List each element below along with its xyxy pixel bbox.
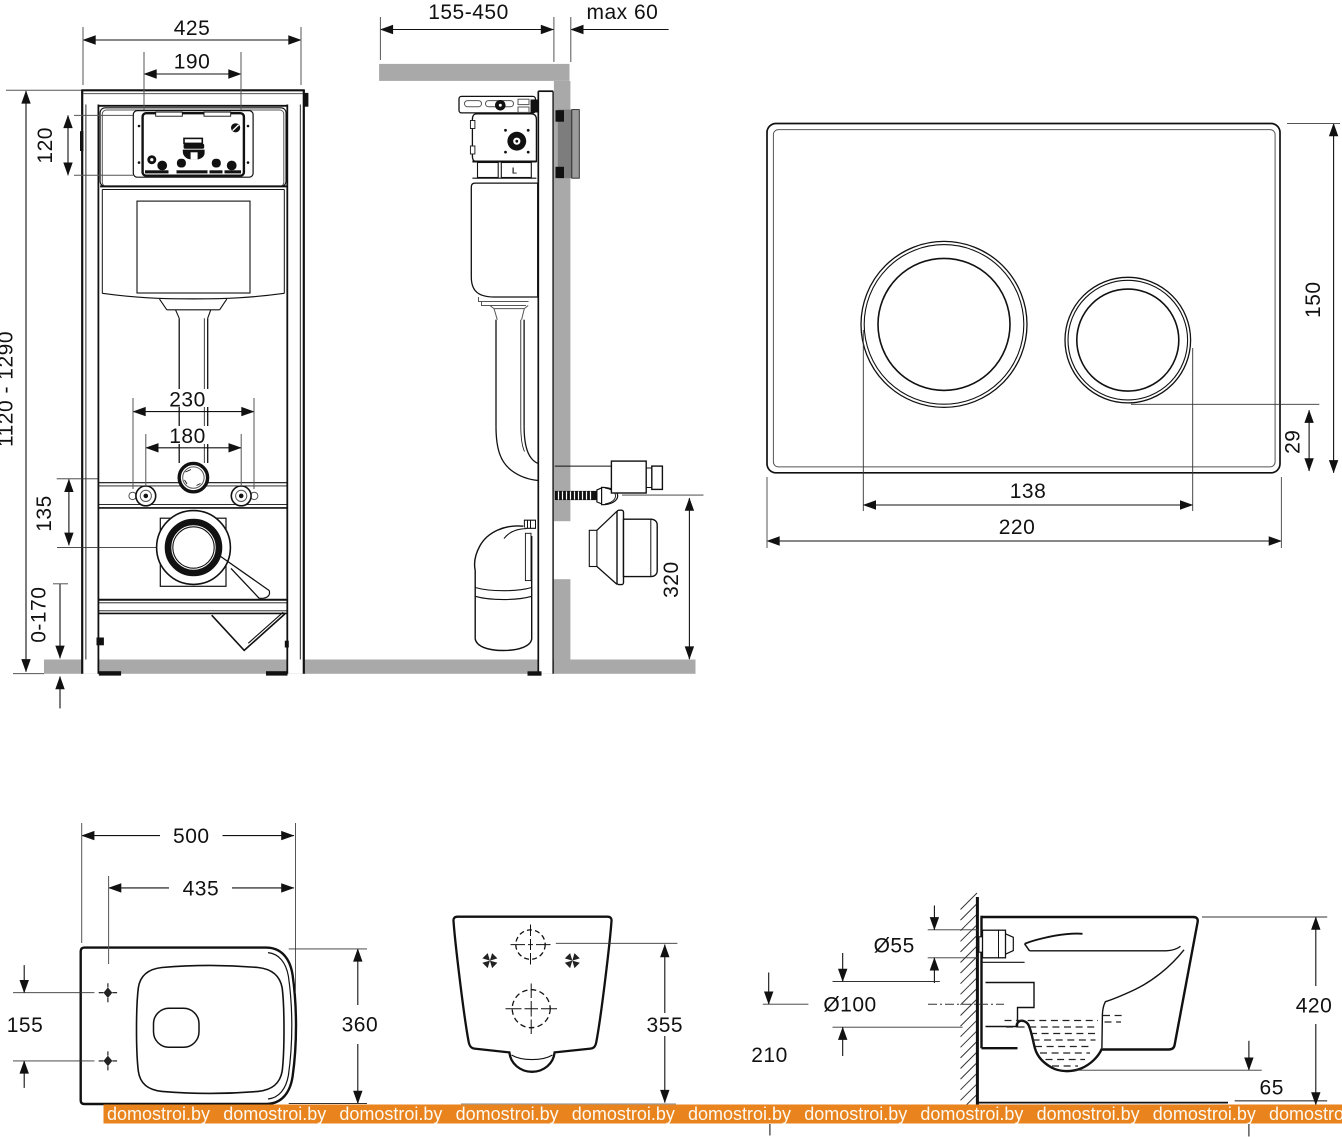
svg-text:190: 190 bbox=[174, 51, 211, 74]
svg-text:420: 420 bbox=[1296, 995, 1333, 1018]
svg-text:500: 500 bbox=[173, 825, 210, 848]
svg-text:320: 320 bbox=[660, 561, 683, 598]
svg-text:domostroi.by: domostroi.by bbox=[456, 1104, 559, 1124]
svg-text:domostroi.by: domostroi.by bbox=[1153, 1104, 1256, 1124]
svg-text:domostroi.by: domostroi.by bbox=[1269, 1104, 1342, 1124]
svg-text:29: 29 bbox=[1282, 430, 1305, 454]
svg-text:L: L bbox=[512, 167, 517, 176]
svg-text:domostroi.by: domostroi.by bbox=[339, 1104, 442, 1124]
svg-text:domostroi.by: domostroi.by bbox=[572, 1104, 675, 1124]
svg-text:138: 138 bbox=[1010, 480, 1047, 503]
svg-text:65: 65 bbox=[1260, 1077, 1284, 1100]
svg-text:domostroi.by: domostroi.by bbox=[223, 1104, 326, 1124]
svg-text:150: 150 bbox=[1302, 281, 1325, 318]
svg-text:435: 435 bbox=[183, 877, 220, 900]
svg-text:355: 355 bbox=[647, 1014, 684, 1037]
svg-text:Ø55: Ø55 bbox=[874, 935, 915, 958]
svg-text:425: 425 bbox=[174, 17, 211, 40]
svg-text:220: 220 bbox=[999, 516, 1036, 539]
svg-text:180: 180 bbox=[169, 425, 206, 448]
svg-text:domostroi.by: domostroi.by bbox=[107, 1104, 210, 1124]
svg-text:domostroi.by: domostroi.by bbox=[1037, 1104, 1140, 1124]
svg-text:1120 - 1290: 1120 - 1290 bbox=[0, 331, 18, 447]
svg-text:135: 135 bbox=[33, 495, 56, 532]
svg-text:155-450: 155-450 bbox=[428, 1, 509, 24]
svg-text:360: 360 bbox=[342, 1014, 379, 1037]
svg-text:domostroi.by: domostroi.by bbox=[688, 1104, 791, 1124]
svg-text:120: 120 bbox=[34, 127, 57, 164]
svg-text:210: 210 bbox=[751, 1044, 788, 1067]
svg-text:230: 230 bbox=[169, 389, 206, 412]
svg-text:max 60: max 60 bbox=[586, 1, 658, 24]
svg-text:0-170: 0-170 bbox=[28, 587, 51, 643]
svg-text:Ø100: Ø100 bbox=[823, 993, 876, 1016]
svg-text:155: 155 bbox=[7, 1014, 44, 1037]
svg-text:domostroi.by: domostroi.by bbox=[804, 1104, 907, 1124]
svg-text:domostroi.by: domostroi.by bbox=[920, 1104, 1023, 1124]
